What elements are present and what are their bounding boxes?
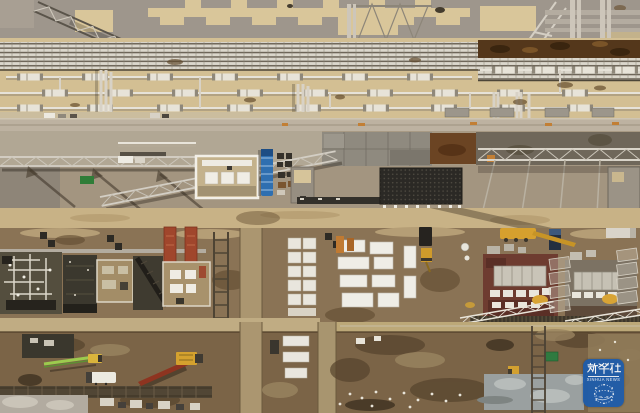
- industrial-module: [0, 252, 62, 314]
- concrete-panel-pad: [322, 132, 432, 166]
- assembly-corridor-band: [0, 131, 640, 236]
- xinhua-cjk-logotype: [587, 362, 621, 375]
- vertical-road: [240, 228, 262, 322]
- aerial-photo: 新华社 XINHUA NEWS: [0, 0, 640, 413]
- service-road: [0, 118, 640, 131]
- foundation-pit: [133, 256, 167, 310]
- work-pad: [196, 156, 258, 198]
- right-edge-building: [608, 167, 640, 211]
- foundation-pit: [63, 255, 97, 313]
- blue-trailer-truck: [258, 149, 273, 196]
- tan-haul-road: [0, 208, 640, 228]
- blue-gray-slab: [477, 374, 585, 410]
- dark-truck: [419, 227, 432, 246]
- green-container: [545, 352, 558, 361]
- globe-network-icon: [590, 383, 618, 405]
- watermark-subtitle: XINHUA NEWS: [587, 378, 621, 383]
- pipe-bundle-left: [0, 42, 478, 69]
- equipment-foundation-a: [483, 244, 558, 322]
- work-pad-small: [97, 260, 133, 302]
- construction-site-scene: [0, 0, 640, 413]
- xinhua-watermark: 新华社 XINHUA NEWS: [583, 359, 624, 407]
- equipment-pit: [22, 334, 74, 358]
- work-pad-small: [163, 262, 210, 306]
- wheel-loader: [508, 366, 519, 374]
- green-bin: [80, 176, 94, 184]
- lower-excavation-band: [0, 318, 640, 413]
- concrete-slab: [0, 395, 88, 413]
